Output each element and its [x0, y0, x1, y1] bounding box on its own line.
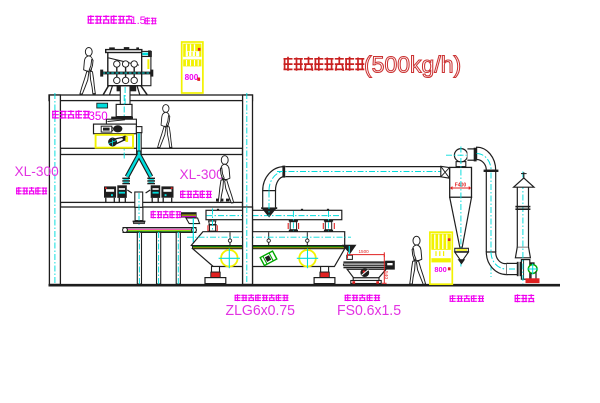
svg-text:540: 540: [383, 271, 389, 279]
svg-text:(500kg/h): (500kg/h): [364, 52, 461, 78]
svg-text:1500: 1500: [359, 249, 370, 254]
svg-text:1.5: 1.5: [131, 15, 146, 27]
svg-text:800: 800: [434, 265, 446, 274]
svg-text:ZLG6x0.75: ZLG6x0.75: [226, 303, 296, 319]
svg-text:FS0.6x1.5: FS0.6x1.5: [337, 303, 401, 319]
svg-text:800: 800: [185, 73, 199, 82]
svg-text:XL-300: XL-300: [180, 166, 225, 182]
svg-text:XL-300: XL-300: [15, 163, 60, 179]
svg-text:350: 350: [89, 111, 108, 123]
